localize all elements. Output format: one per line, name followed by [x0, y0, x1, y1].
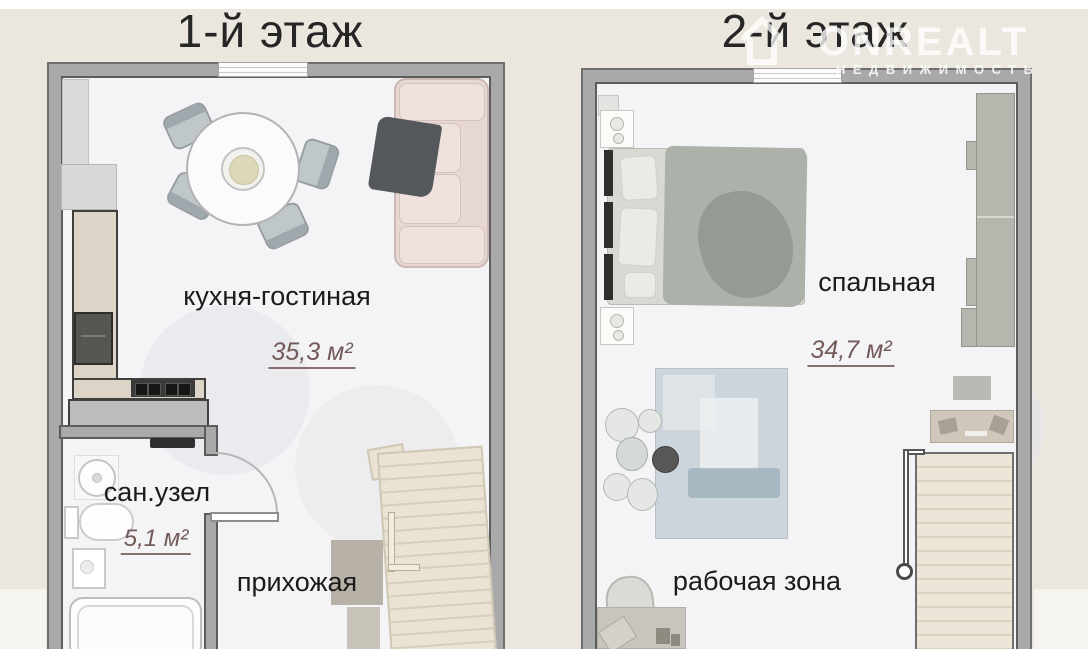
- sofa-armrest: [399, 83, 485, 121]
- stove: [131, 380, 195, 397]
- rug-pattern: [688, 468, 780, 498]
- washing-machine-door: [92, 473, 102, 483]
- floor1-wall-bathroom-right-lower: [204, 513, 218, 649]
- nightstand: [600, 110, 634, 148]
- floorplan-image: 1-й этаж 2-й этаж: [0, 0, 1088, 649]
- toilet-tank: [64, 506, 79, 539]
- kitchen-living-area: 35,3 м²: [268, 338, 355, 367]
- sofa-armrest: [399, 226, 485, 264]
- desk-item: [989, 415, 1010, 436]
- wardrobe-section: [966, 258, 977, 306]
- onrealt-house-icon: [740, 14, 784, 66]
- pillow: [624, 272, 656, 298]
- kitchen-cabinet-tall: [62, 79, 89, 165]
- sofa-blanket: [368, 115, 443, 198]
- rug-pattern: [700, 398, 758, 470]
- drum: [616, 437, 648, 471]
- hallway-cabinet-small: [347, 607, 380, 649]
- bathtub-inner: [77, 605, 194, 649]
- stove-burner: [165, 383, 178, 396]
- stove-burner: [135, 383, 148, 396]
- bed-headboard: [604, 150, 613, 196]
- bathroom-area: 5,1 м²: [121, 525, 191, 553]
- desk-top-right: [930, 410, 1014, 443]
- background-patch-right: [1034, 589, 1088, 649]
- nightstand: [600, 307, 634, 345]
- bathroom-sink-drain: [80, 560, 94, 574]
- bathroom-shelf: [150, 438, 195, 448]
- stairs-handrail-post: [896, 563, 913, 580]
- stairs-handrail: [903, 449, 909, 569]
- background-patch-left: [0, 589, 46, 649]
- fridge: [74, 312, 113, 365]
- drum-bass: [652, 446, 679, 473]
- floor1-title: 1-й этаж: [177, 4, 364, 58]
- desk-item: [938, 417, 959, 434]
- kitchen-cabinet: [61, 164, 117, 210]
- desk-item: [656, 628, 670, 644]
- stairs-handrail: [388, 564, 420, 571]
- wardrobe: [976, 93, 1015, 347]
- bed-headboard: [604, 202, 613, 248]
- desk-item: [965, 431, 987, 436]
- top-white-strip: [0, 0, 1088, 9]
- wardrobe-section: [966, 141, 977, 170]
- stove-burner: [178, 383, 191, 396]
- bathroom-label: сан.узел: [104, 477, 210, 508]
- kitchen-counter-vertical: [72, 210, 118, 400]
- kitchen-living-label: кухня-гостиная: [183, 281, 370, 312]
- nightstand-knob: [613, 330, 624, 341]
- wardrobe-section: [961, 308, 977, 347]
- nightstand-knob: [610, 314, 624, 328]
- drum-cymbal: [638, 409, 662, 433]
- floor1-wall-bathroom-top: [59, 425, 218, 439]
- bed-headboard: [604, 254, 613, 300]
- bathroom-door: [210, 512, 279, 522]
- storage-box: [953, 376, 991, 400]
- bedroom-label: спальная: [818, 267, 936, 298]
- stove-burner: [148, 383, 161, 396]
- floor2-window: [753, 68, 842, 83]
- hallway-label: прихожая: [237, 567, 357, 598]
- nightstand-knob: [610, 117, 624, 131]
- nightstand-knob: [613, 133, 624, 144]
- bedroom-area: 34,7 м²: [807, 336, 894, 365]
- desk-item: [671, 634, 680, 646]
- pillow: [618, 207, 659, 267]
- pillow: [620, 155, 659, 201]
- onrealt-watermark: ONREALT: [818, 20, 1029, 65]
- drum-cymbal: [627, 478, 658, 511]
- stairs-floor2: [915, 452, 1014, 649]
- stairs-handrail: [388, 512, 395, 572]
- dining-table-bowl: [229, 155, 259, 185]
- work-zone-label: рабочая зона: [673, 566, 841, 597]
- floor1-window: [218, 62, 308, 77]
- onrealt-watermark-subtitle: НЕДВИЖИМОСТЬ: [836, 62, 1040, 77]
